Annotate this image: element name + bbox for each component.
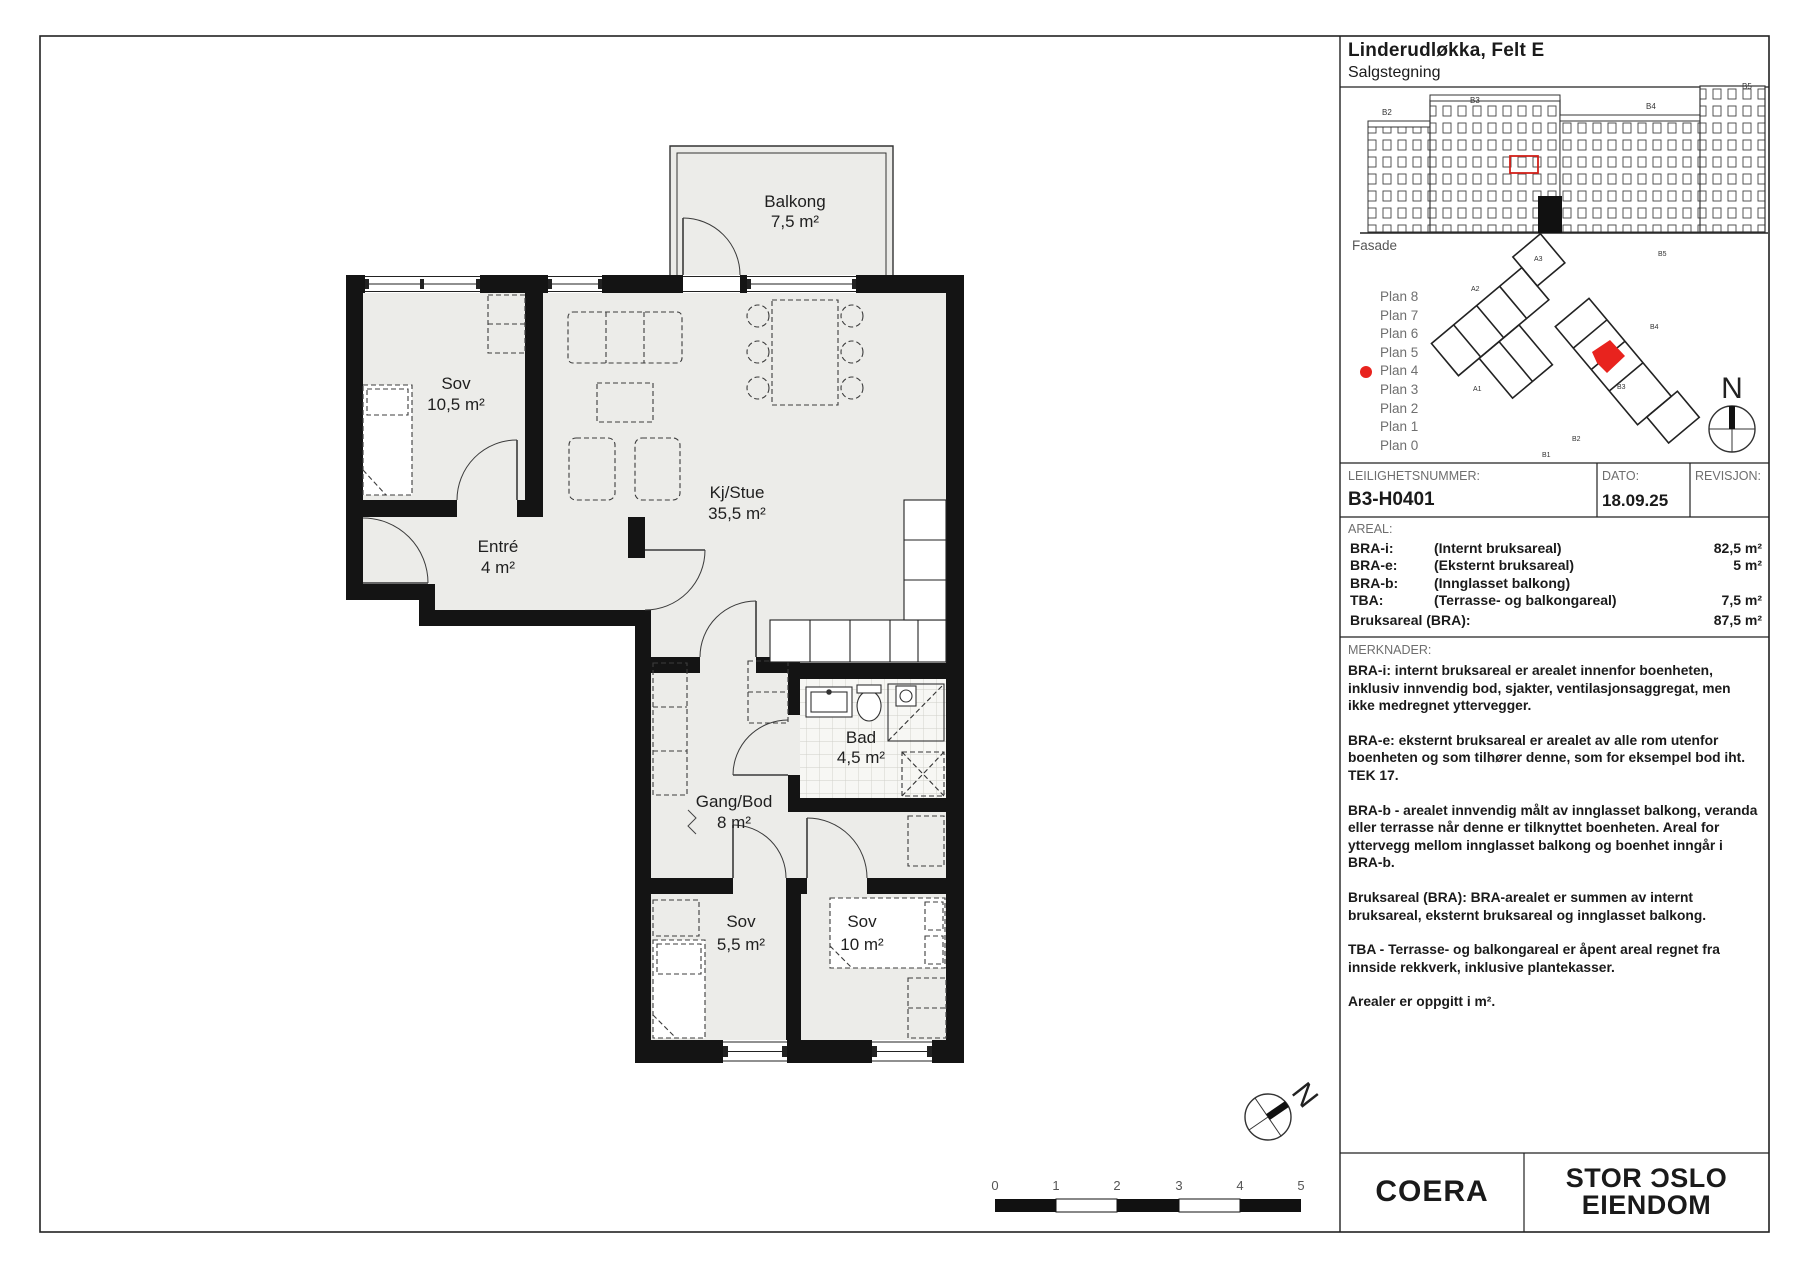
keyplan-label: B4 (1650, 324, 1659, 331)
room-area: 5,5 m² (717, 935, 766, 954)
drawing-canvas: Balkong 7,5 m² Sov 10,5 m² Kj/Stue 35,5 … (0, 0, 1810, 1280)
room-area: 7,5 m² (771, 212, 820, 231)
merknader-paragraph: BRA-i: internt bruksareal er arealet inn… (1348, 662, 1760, 715)
facade-block-label: B2 (1382, 108, 1392, 117)
coera-logo: COERA (1340, 1175, 1524, 1209)
window (747, 275, 856, 293)
room-area: 4,5 m² (837, 748, 886, 767)
keyplan-label: B3 (1617, 384, 1626, 391)
room-label: Bad (846, 728, 876, 747)
room-label: Kj/Stue (710, 483, 765, 502)
merknader-body: BRA-i: internt bruksareal er arealet inn… (1348, 662, 1760, 1028)
revision-label: REVISJON: (1695, 469, 1761, 483)
keyplan-label: A2 (1471, 286, 1480, 293)
date-value: 18.09.25 (1602, 491, 1668, 511)
window (723, 1040, 787, 1063)
svg-text:1: 1 (1052, 1178, 1059, 1193)
plan-north-arrow-icon: N (1245, 1077, 1324, 1140)
room-label: Sov (847, 912, 877, 931)
room-area: 10,5 m² (427, 395, 485, 414)
scale-bar: 0 1 2 3 4 5 (991, 1178, 1304, 1212)
room-area: 35,5 m² (708, 504, 766, 523)
plan-level-item: Plan 3 (1380, 381, 1418, 400)
plan-level-item: Plan 6 (1380, 325, 1418, 344)
facade-block-label: B4 (1646, 102, 1656, 111)
areal-section-label: AREAL: (1348, 522, 1392, 536)
plan-level-item: Plan 7 (1380, 307, 1418, 326)
keyplan-label: B2 (1572, 436, 1581, 443)
fasade-caption: Fasade (1352, 238, 1397, 253)
keyplan-label: B5 (1658, 251, 1667, 258)
areal-row: BRA-e: (Eksternt bruksareal) 5 m² (1350, 557, 1762, 574)
svg-text:3: 3 (1175, 1178, 1182, 1193)
merknader-paragraph: Bruksareal (BRA): BRA-arealet er summen … (1348, 889, 1760, 924)
room-area: 4 m² (481, 558, 515, 577)
plan-level-item: Plan 0 (1380, 437, 1418, 456)
room-label: Gang/Bod (696, 792, 773, 811)
svg-text:2: 2 (1113, 1178, 1120, 1193)
north-label: N (1721, 372, 1743, 405)
plan-level-list: Plan 8 Plan 7 Plan 6 Plan 5 Plan 4 Plan … (1380, 288, 1418, 455)
room-label: Sov (726, 912, 756, 931)
north-label: N (1285, 1077, 1324, 1114)
apartment-number: B3-H0401 (1348, 489, 1435, 511)
plan-level-item: Plan 1 (1380, 418, 1418, 437)
room-area: 8 m² (717, 813, 751, 832)
toilet (857, 691, 881, 721)
merknader-paragraph: BRA-b - arealet innvendig målt av inngla… (1348, 802, 1760, 872)
plan-level-item-selected: Plan 4 (1380, 362, 1418, 381)
north-compass-icon: N (1709, 372, 1755, 452)
keyplan-label: A3 (1534, 256, 1543, 263)
merknader-paragraph: TBA - Terrasse- og balkongareal er åpent… (1348, 941, 1760, 976)
window (872, 1040, 932, 1063)
keyplan-label: B1 (1542, 452, 1551, 459)
plan-level-item: Plan 2 (1380, 400, 1418, 419)
areal-row: BRA-b: (Innglasset balkong) (1350, 575, 1762, 592)
site-keyplan (1422, 234, 1699, 451)
stor-oslo-eiendom-logo: STOR ƆSLO EIENDOM (1524, 1165, 1769, 1219)
drawing-type: Salgstegning (1348, 64, 1441, 82)
room-area: 10 m² (840, 935, 884, 954)
keyplan-label: A1 (1473, 386, 1482, 393)
date-label: DATO: (1602, 469, 1639, 483)
svg-text:5: 5 (1297, 1178, 1304, 1193)
bed (830, 898, 945, 968)
svg-text:4: 4 (1236, 1178, 1243, 1193)
facade-block-label: B5 (1742, 82, 1752, 91)
plan-level-item: Plan 5 (1380, 344, 1418, 363)
room-label: Balkong (764, 192, 825, 211)
floor-plan: Balkong 7,5 m² Sov 10,5 m² Kj/Stue 35,5 … (346, 146, 964, 1063)
merknader-paragraph: BRA-e: eksternt bruksareal er arealet av… (1348, 732, 1760, 785)
facade-elevation (1360, 86, 1768, 233)
areal-row: BRA-i: (Internt bruksareal) 82,5 m² (1350, 540, 1762, 557)
room-label: Entré (478, 537, 519, 556)
balcony-door-opening (683, 275, 740, 293)
salgstegning-sheet: { "title": { "project": "Linderudløkka, … (0, 0, 1810, 1280)
facade-block-label: B3 (1470, 96, 1480, 105)
merknader-paragraph: Arealer er oppgitt i m². (1348, 993, 1760, 1011)
areal-row: Bruksareal (BRA): 87,5 m² (1350, 612, 1762, 629)
window (548, 275, 602, 293)
svg-text:0: 0 (991, 1178, 998, 1193)
room-label: Sov (441, 374, 471, 393)
apartment-number-label: LEILIGHETSNUMMER: (1348, 469, 1480, 483)
window (365, 275, 480, 293)
areal-table: BRA-i: (Internt bruksareal) 82,5 m² BRA-… (1350, 540, 1762, 629)
project-title: Linderudløkka, Felt E (1348, 40, 1544, 62)
areal-row: TBA: (Terrasse- og balkongareal) 7,5 m² (1350, 592, 1762, 609)
merknader-section-label: MERKNADER: (1348, 643, 1431, 657)
plan-level-item: Plan 8 (1380, 288, 1418, 307)
